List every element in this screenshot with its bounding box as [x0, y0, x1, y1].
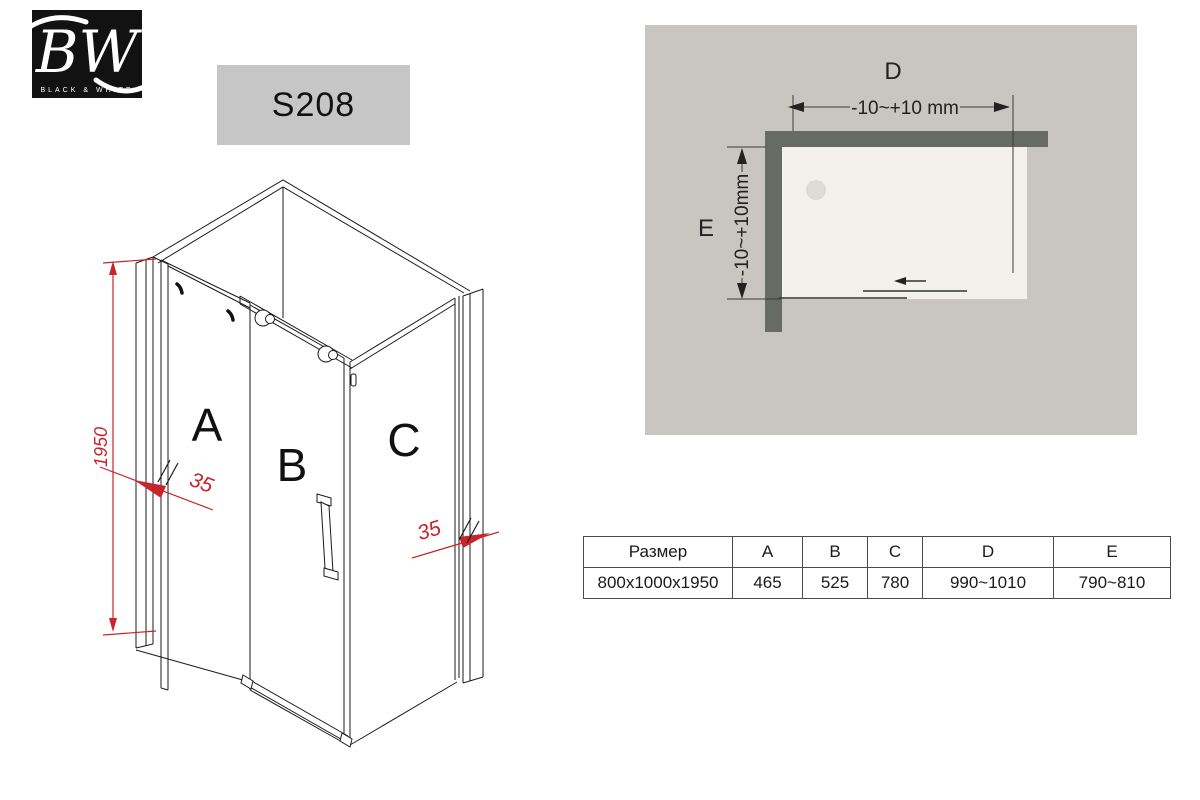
door-stopper — [351, 374, 356, 386]
panel-c-glass — [350, 296, 459, 745]
glass-thickness-right-value: 35 — [415, 516, 444, 545]
width-tolerance: -10~+10 mm — [851, 98, 959, 119]
glass-thickness-left: 35 — [100, 460, 217, 510]
isometric-drawing: 1950 35 35 A B C — [85, 160, 515, 785]
value-e: 790~810 — [1054, 568, 1171, 599]
door-handle — [317, 494, 338, 580]
header-b: B — [803, 537, 868, 568]
value-b: 525 — [803, 568, 868, 599]
spec-table-header-row: Размер A B C D E — [584, 537, 1171, 568]
shower-tray — [782, 147, 1027, 299]
value-size: 800x1000x1950 — [584, 568, 733, 599]
depth-tolerance: -10~+10mm — [732, 174, 753, 276]
model-code: S208 — [272, 86, 355, 125]
logo-subtitle: BLACK & WHITE — [40, 87, 133, 94]
value-d: 990~1010 — [923, 568, 1054, 599]
header-c: C — [868, 537, 923, 568]
back-rim-lines — [153, 180, 470, 318]
drain — [806, 180, 826, 200]
wall-top — [765, 131, 1048, 147]
wall-left — [765, 131, 782, 332]
value-a: 465 — [733, 568, 803, 599]
panel-b-label: B — [277, 439, 308, 491]
width-label: D — [884, 58, 901, 85]
value-c: 780 — [868, 568, 923, 599]
panel-a-label: A — [192, 399, 223, 451]
model-badge: S208 — [217, 65, 410, 145]
right-wall-profile — [463, 289, 483, 683]
spec-table: Размер A B C D E 800x1000x1950 465 525 7… — [583, 536, 1171, 599]
panel-c-label: C — [387, 414, 420, 466]
header-d: D — [923, 537, 1054, 568]
depth-label: E — [698, 215, 714, 242]
header-a: A — [733, 537, 803, 568]
glass-thickness-left-value: 35 — [186, 468, 216, 498]
top-view-diagram: D -10~+10 mm E -10~+10mm — [645, 25, 1137, 435]
header-e: E — [1054, 537, 1171, 568]
height-dimension-value: 1950 — [91, 427, 111, 467]
bottom-rail — [241, 675, 352, 747]
logo-monogram: BW — [35, 18, 143, 86]
spec-table-data-row: 800x1000x1950 465 525 780 990~1010 790~8… — [584, 568, 1171, 599]
header-size: Размер — [584, 537, 733, 568]
brand-logo: BW BLACK & WHITE — [0, 0, 185, 130]
